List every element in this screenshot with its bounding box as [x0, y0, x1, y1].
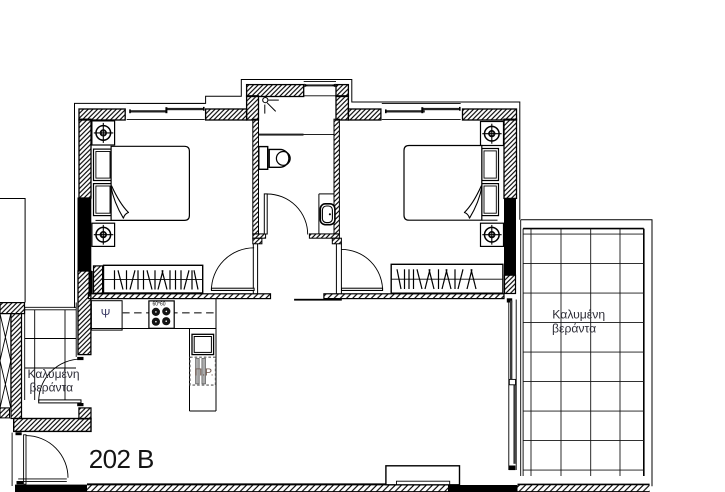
svg-text:Καλυμένη: Καλυμένη: [28, 367, 80, 381]
svg-text:60*60: 60*60: [153, 301, 166, 307]
svg-text:Π.Ρ.: Π.Ρ.: [195, 366, 214, 378]
svg-text:Καλυμένη: Καλυμένη: [552, 307, 605, 321]
svg-text:βεράντα: βεράντα: [552, 321, 596, 335]
svg-text:βεράντα: βεράντα: [30, 381, 74, 395]
svg-text:Ψ: Ψ: [101, 309, 111, 321]
svg-text:202 B: 202 B: [89, 444, 154, 474]
